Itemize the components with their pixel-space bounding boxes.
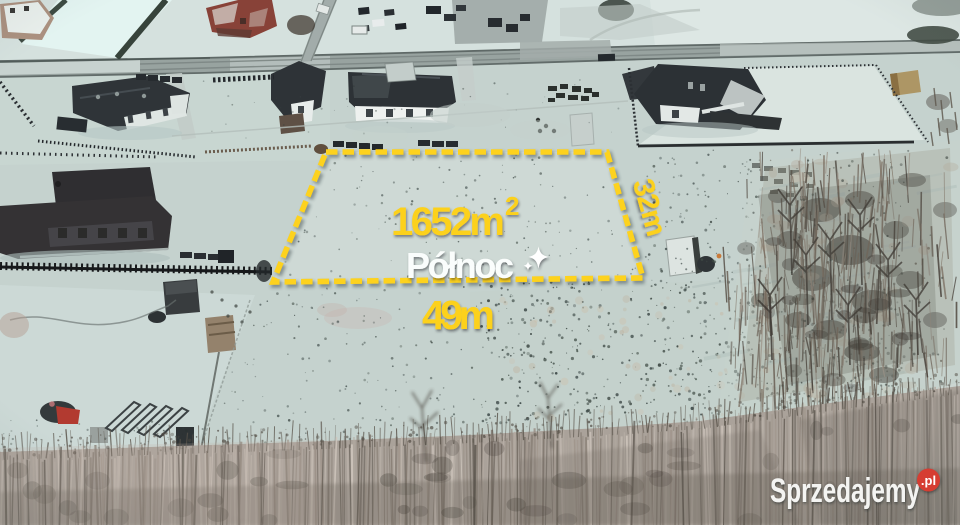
svg-text:2: 2 bbox=[505, 191, 519, 221]
svg-text:.pl: .pl bbox=[921, 473, 936, 488]
svg-text:49m: 49m bbox=[422, 292, 495, 338]
svg-text:Północ: Północ bbox=[406, 245, 514, 286]
svg-text:1652m: 1652m bbox=[391, 200, 505, 244]
svg-text:Sprzedajemy: Sprzedajemy bbox=[770, 472, 920, 510]
